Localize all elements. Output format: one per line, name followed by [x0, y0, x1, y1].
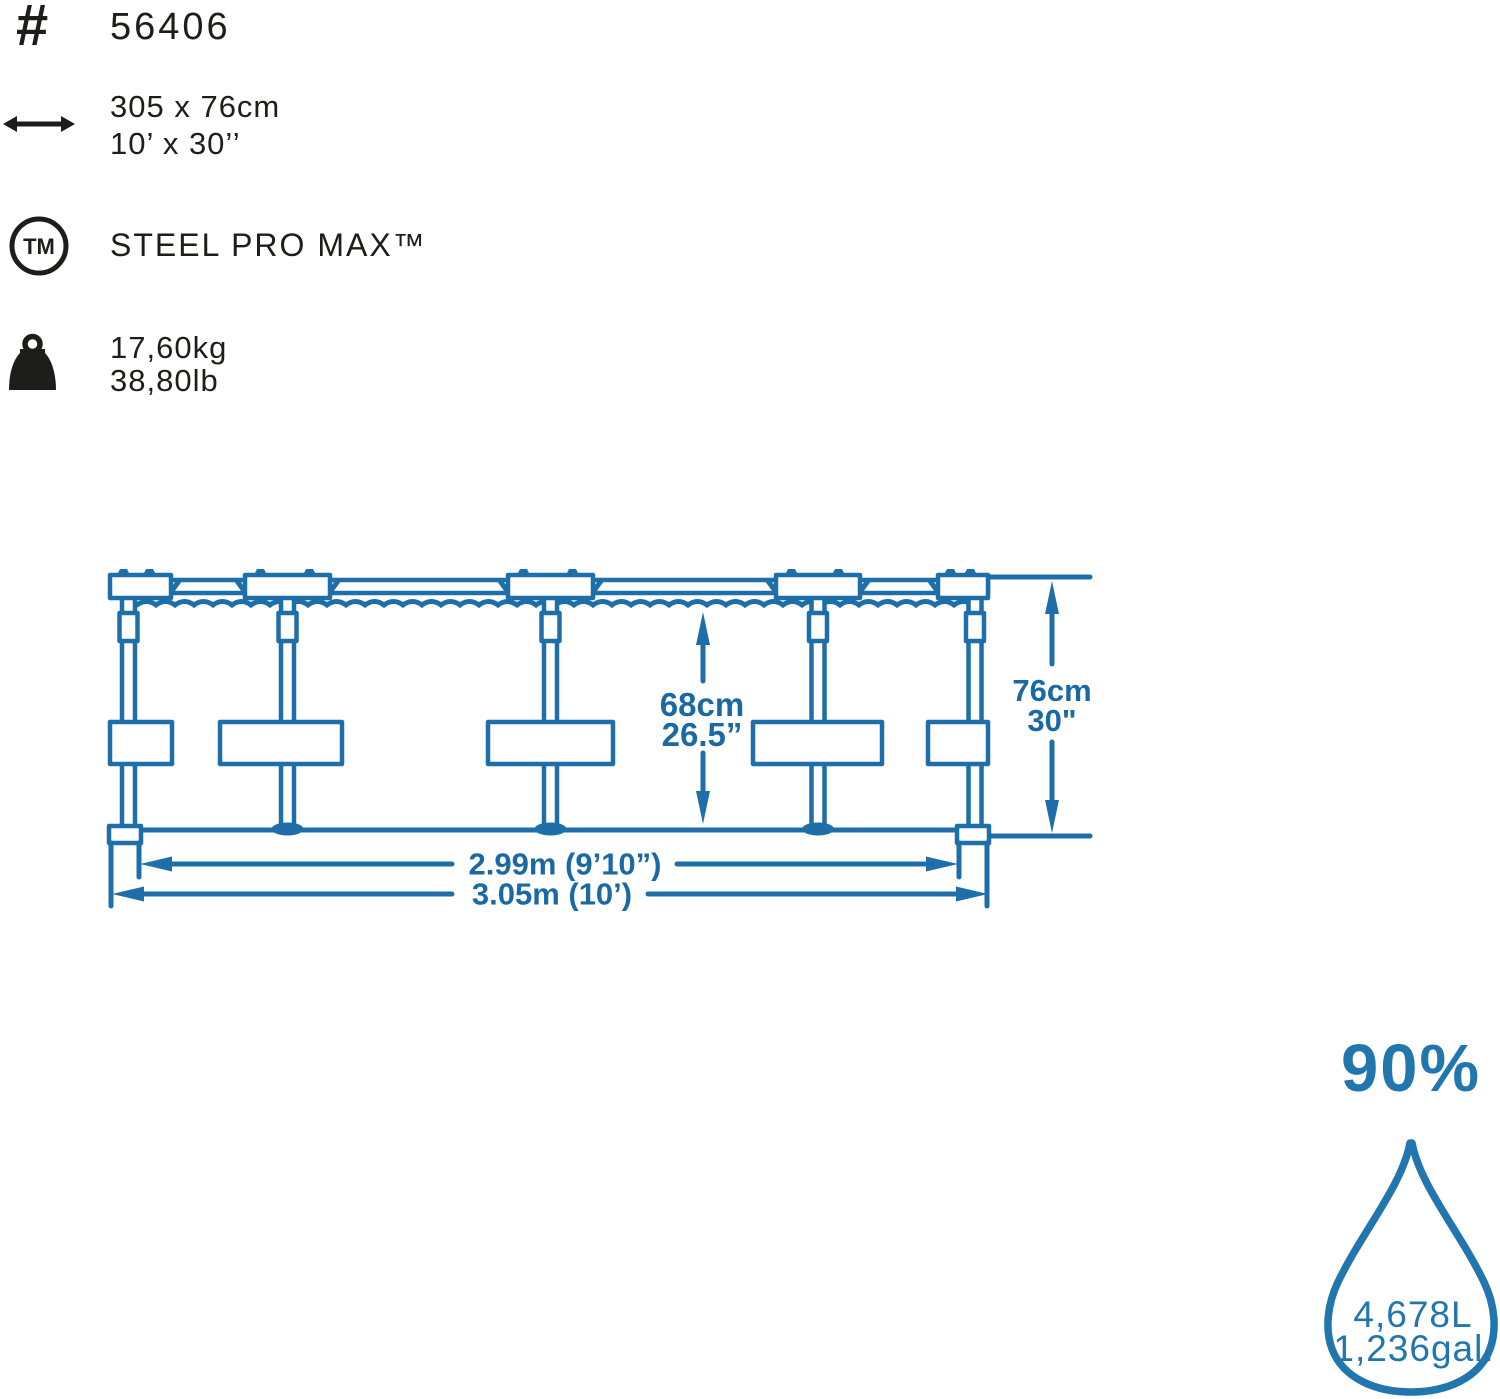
wall-band — [488, 722, 613, 764]
rail-cap — [110, 575, 171, 598]
outer-diameter-dimension: 3.05m (10’) — [112, 877, 988, 912]
wall-band — [753, 722, 882, 764]
wall-band — [110, 722, 172, 764]
rail-cap — [245, 575, 330, 598]
fill-percent-label: 90% — [1341, 1031, 1481, 1106]
wall-height-imperial-label: 30" — [1027, 703, 1076, 738]
leg-foot — [535, 823, 567, 836]
leg-joint — [120, 613, 138, 641]
rail-cap — [508, 575, 593, 598]
leg-foot — [802, 823, 834, 836]
capacity-gallons-label: 1,236gal. — [1333, 1328, 1494, 1369]
water-height-imperial-label: 26.5” — [662, 716, 743, 753]
wall-band — [220, 722, 342, 764]
rail-cap — [776, 575, 860, 598]
leg-joint — [809, 613, 827, 641]
capacity-info: 90% 4,678L 1,236gal. — [1328, 1031, 1495, 1392]
water-height-dimension: 68cm 26.5” — [660, 612, 744, 824]
leg-foot — [957, 826, 989, 843]
wall-band — [928, 722, 988, 764]
leg-foot — [272, 823, 304, 836]
wall-height-dimension: 76cm 30" — [1012, 581, 1091, 833]
leg-joint — [279, 613, 297, 641]
pool-side-view — [109, 569, 989, 843]
leg-joint — [542, 613, 560, 641]
leg-foot — [109, 826, 141, 843]
rail-cap — [938, 575, 988, 598]
leg-joint — [966, 613, 984, 641]
outer-diameter-label: 3.05m (10’) — [472, 877, 632, 912]
diagram-svg: 68cm 26.5” 76cm 30" 2.99m (9’10”) 3.05m … — [0, 0, 1500, 1399]
